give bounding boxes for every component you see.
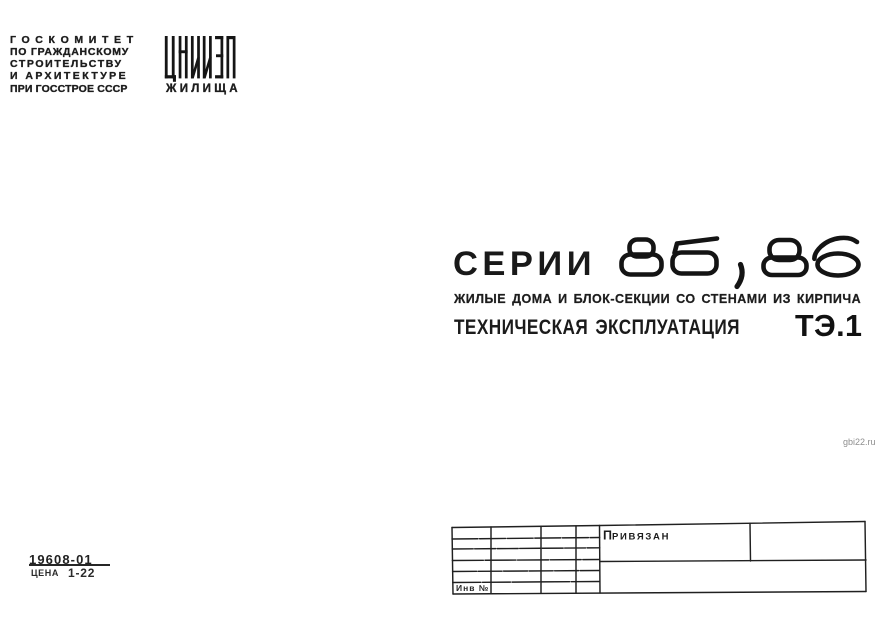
svg-text:Инв №: Инв № [456, 583, 489, 593]
svg-text:ПРИВЯЗАН: ПРИВЯЗАН [603, 528, 670, 542]
